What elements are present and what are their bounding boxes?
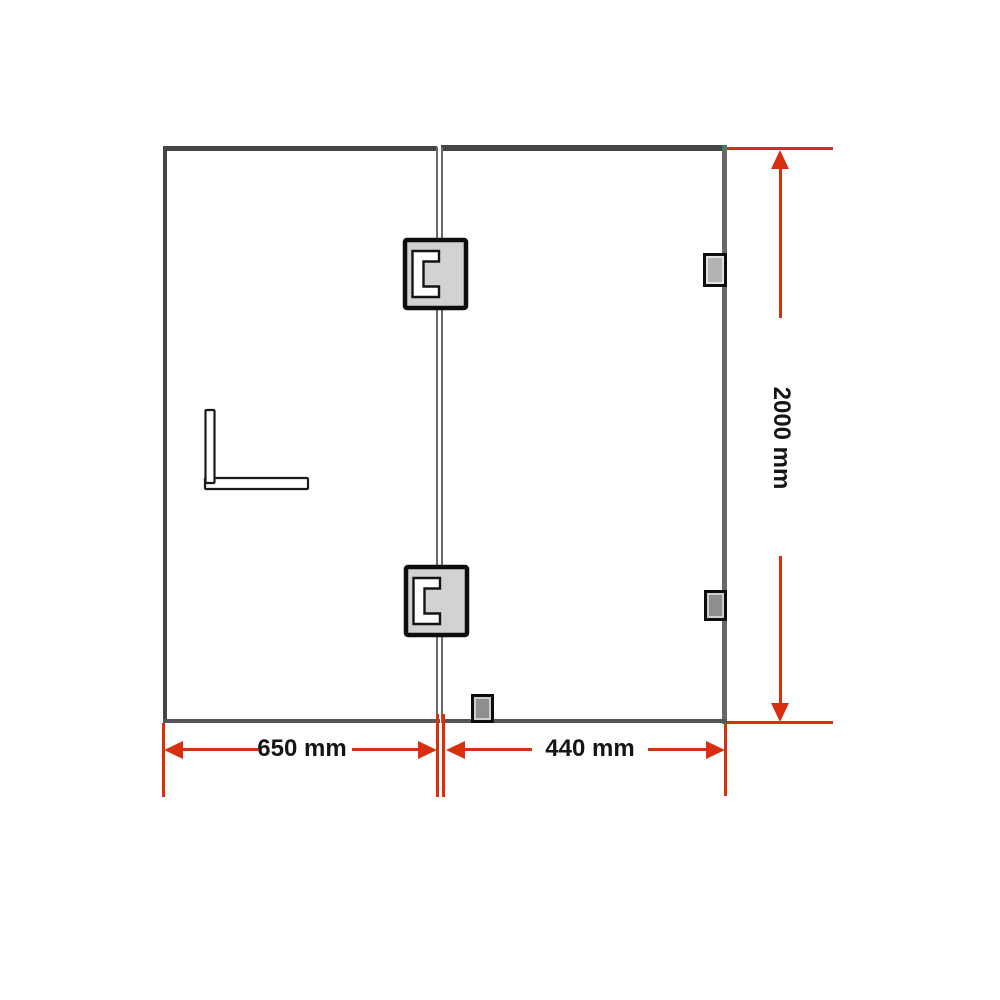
dim-440-line-right — [648, 748, 708, 751]
shower-screen-diagram: 650 mm 440 mm 2000 mm — [0, 0, 1000, 1000]
dim-650-line-left — [180, 748, 258, 751]
glass-hinge-bottom-icon — [403, 564, 470, 638]
door-handle-icon — [203, 408, 311, 492]
dim-440-line-left — [462, 748, 532, 751]
wall-bracket-bottom — [704, 590, 727, 621]
door-panel-top-edge — [441, 145, 727, 151]
dim-650-arrow-right-icon — [418, 741, 437, 759]
fixed-panel-bottom-edge — [163, 719, 440, 723]
glass-hinge-top-icon — [402, 237, 469, 311]
dim-650-line-right — [352, 748, 420, 751]
dim-650-label: 650 mm — [252, 735, 352, 763]
dim-2000-label: 2000 mm — [767, 373, 795, 503]
dim-mid-extension-b — [442, 714, 445, 797]
dim-440-arrow-right-icon — [706, 741, 725, 759]
dim-650-extension-left — [162, 723, 165, 797]
dim-440-extension-right — [724, 723, 727, 796]
fixed-panel-left-edge — [163, 146, 167, 723]
dim-2000-arrow-down-icon — [771, 703, 789, 722]
dim-2000-line-lower — [779, 556, 782, 706]
dim-2000-line-upper — [779, 167, 782, 318]
fixed-panel-top-edge — [163, 146, 437, 151]
dim-440-label: 440 mm — [538, 735, 642, 763]
wall-bracket-top — [703, 253, 727, 287]
floor-bracket — [471, 694, 494, 723]
door-panel-right-edge — [722, 145, 727, 724]
